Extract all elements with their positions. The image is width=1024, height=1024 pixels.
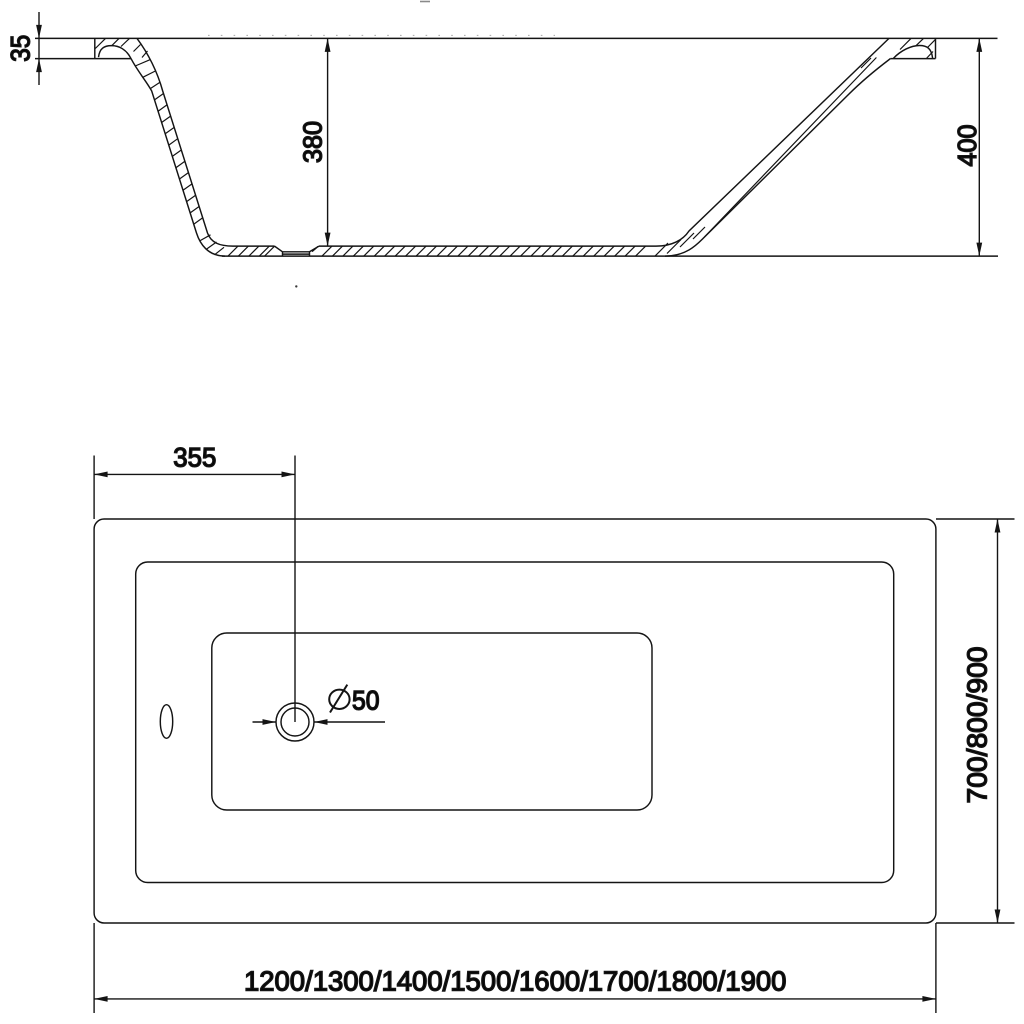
svg-text:400: 400 [952,125,982,167]
svg-text:1200/1300/1400/1500/1600/1700/: 1200/1300/1400/1500/1600/1700/1800/1900 [244,966,787,997]
svg-text:35: 35 [6,35,36,62]
svg-text:50: 50 [352,686,380,716]
svg-text:380: 380 [298,121,328,163]
svg-text:355: 355 [173,443,216,473]
svg-text:700/800/900: 700/800/900 [962,647,993,804]
